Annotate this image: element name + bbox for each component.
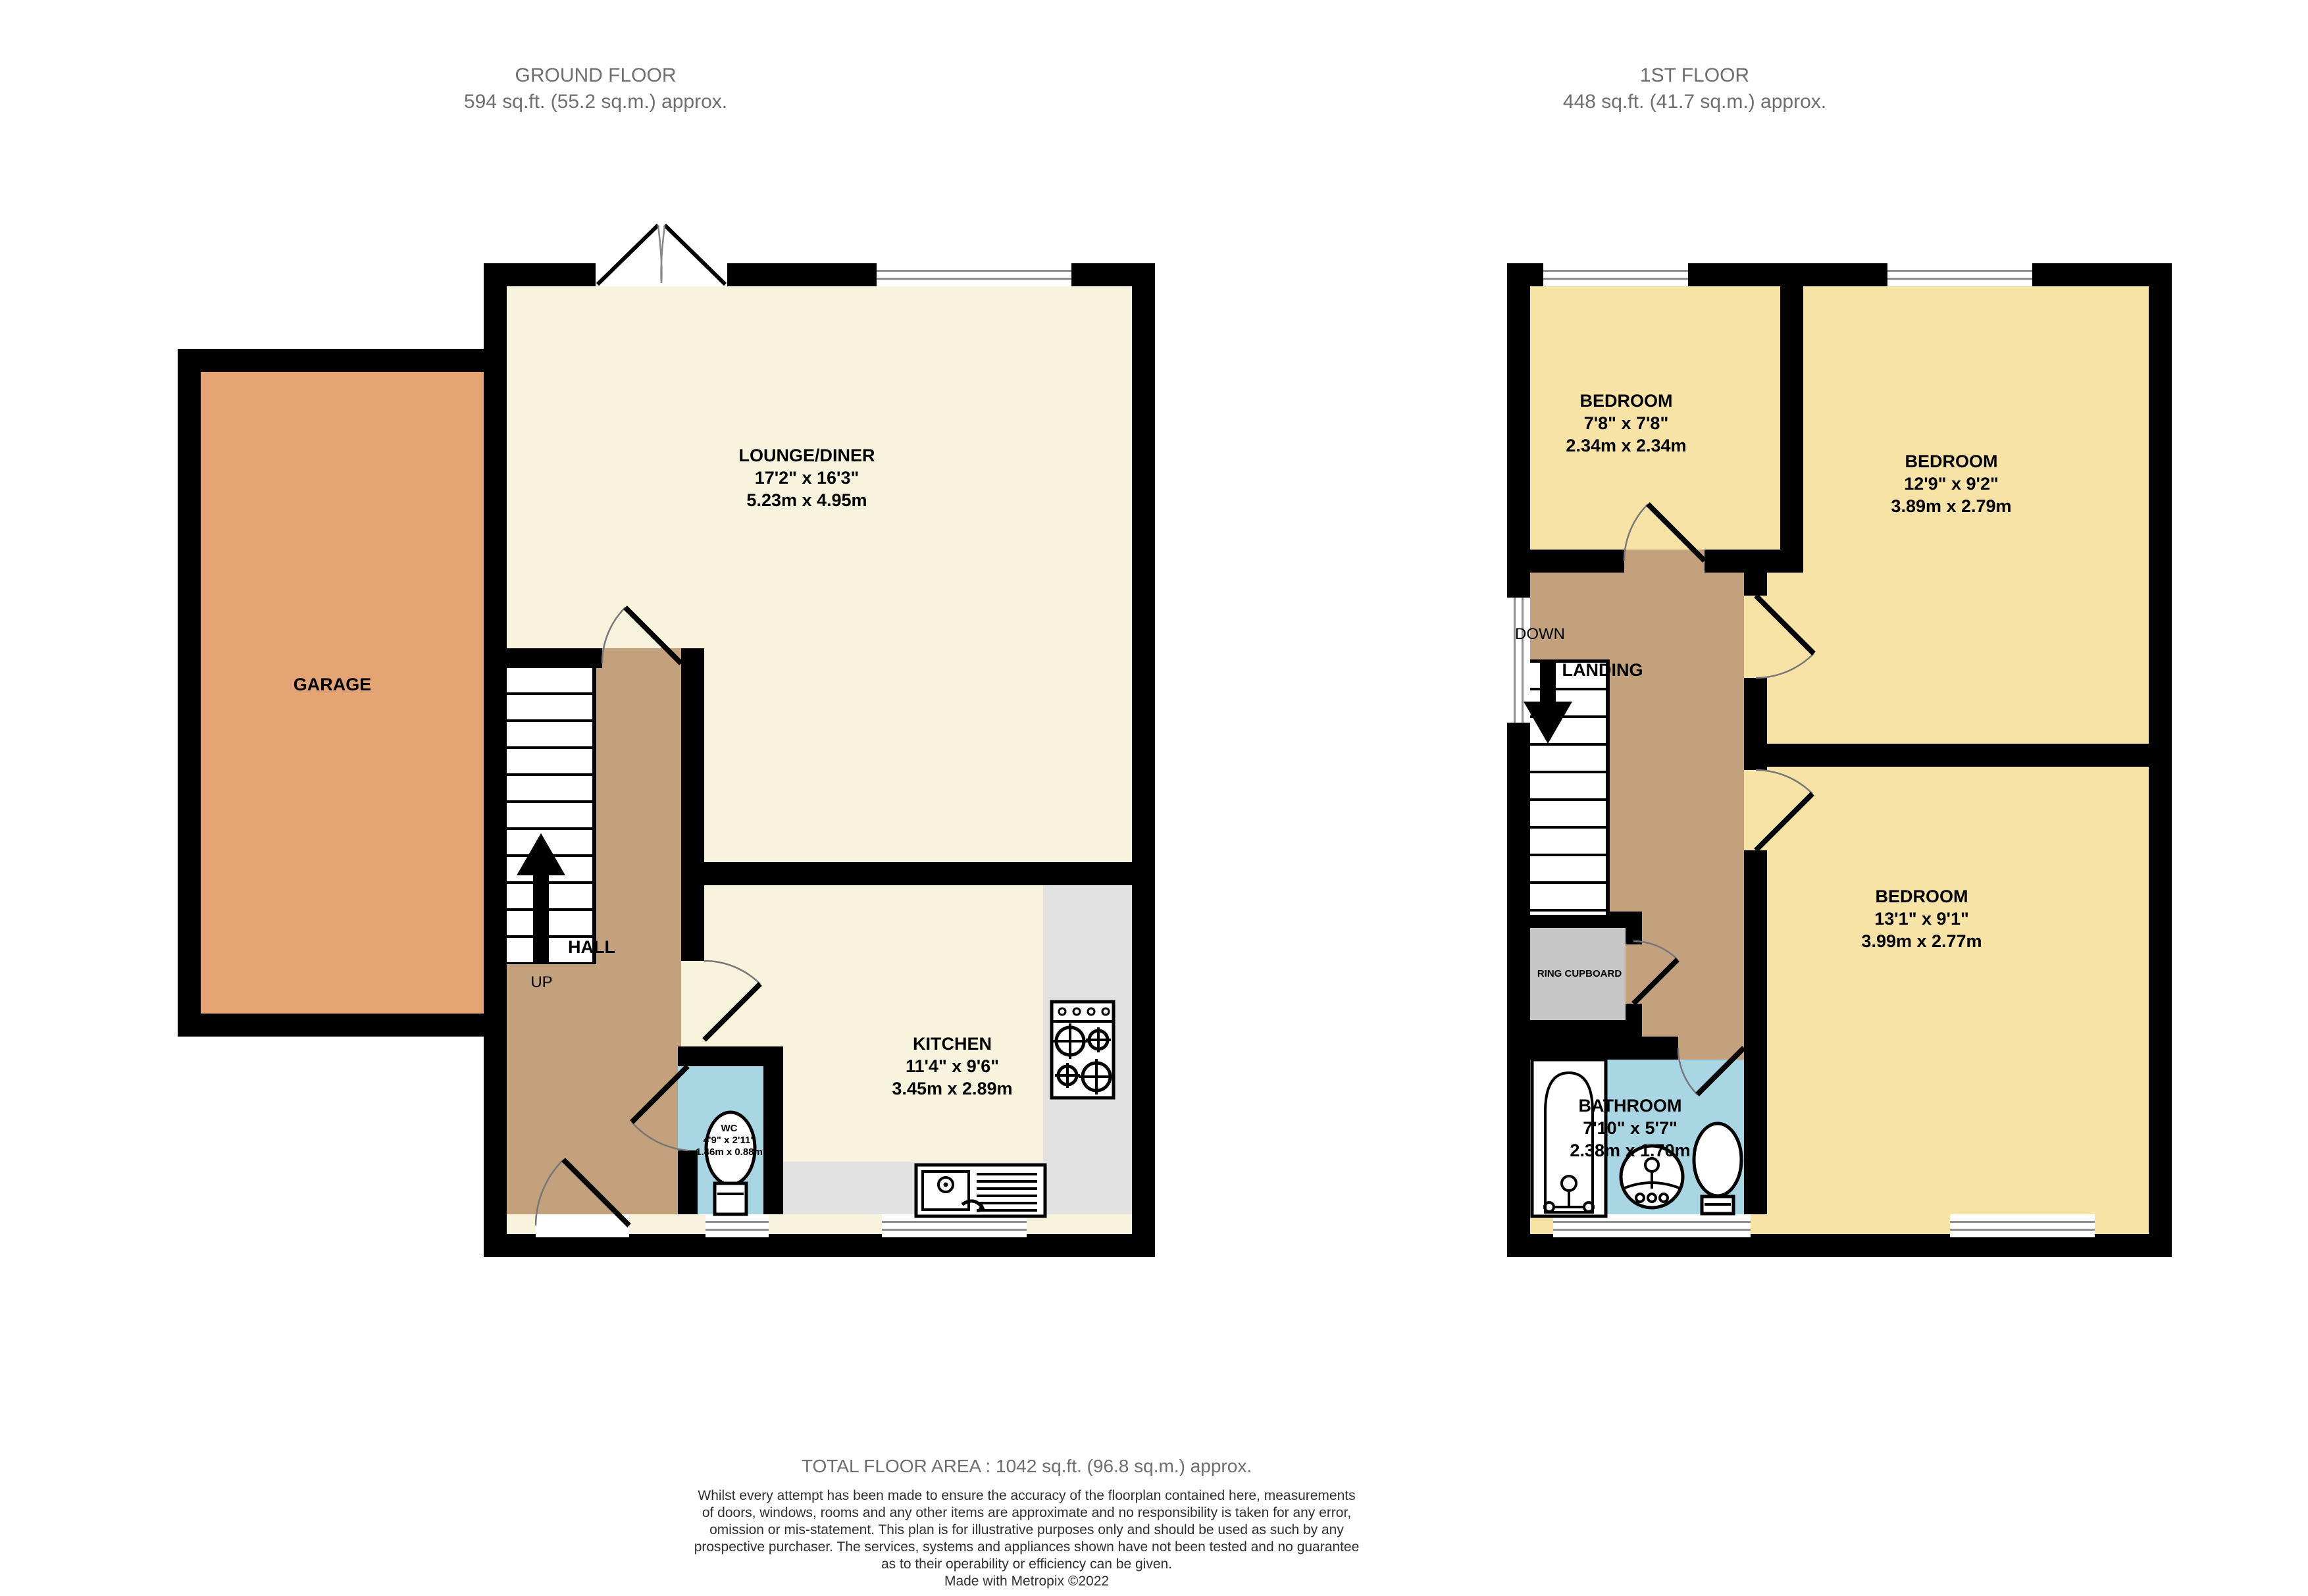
lounge-dims-imperial: 17'2" x 16'3" — [738, 467, 875, 489]
ground-floor-title-block: GROUND FLOOR 594 sq.ft. (55.2 sq.m.) app… — [332, 63, 859, 115]
kitchen-label: KITCHEN 11'4" x 9'6" 3.45m x 2.89m — [892, 1033, 1012, 1100]
wc-dims-imperial: 4'9" x 2'11" — [696, 1135, 763, 1146]
stairs-down-label: DOWN — [1515, 625, 1565, 644]
front-door-icon — [536, 1160, 629, 1225]
credit-line: Made with Metropix ©2022 — [500, 1573, 1553, 1590]
kitchen-door-icon — [704, 961, 760, 1040]
lounge-label: LOUNGE/DINER 17'2" x 16'3" 5.23m x 4.95m — [738, 444, 875, 511]
airing-cupboard-label: RING CUPBOARD — [1537, 968, 1622, 980]
bedroom-front-door-icon — [1756, 770, 1812, 850]
bedroom-front-dims-metric: 3.99m x 2.77m — [1861, 930, 1982, 952]
total-floor-area: TOTAL FLOOR AREA : 1042 sq.ft. (96.8 sq.… — [500, 1456, 1553, 1477]
bedroom-front-label: BEDROOM 13'1" x 9'1" 3.99m x 2.77m — [1861, 885, 1982, 952]
stairs-up-label: UP — [530, 973, 552, 992]
airing-cupboard-door-icon — [1633, 941, 1678, 1004]
stove-icon — [1052, 1002, 1114, 1098]
bathroom-name: BATHROOM — [1570, 1094, 1690, 1117]
wc-dims-metric: 1.46m x 0.88m — [696, 1146, 763, 1158]
footer: TOTAL FLOOR AREA : 1042 sq.ft. (96.8 sq.… — [500, 1456, 1553, 1590]
garage-label: GARAGE — [294, 673, 372, 696]
landing-label: LANDING — [1562, 659, 1643, 681]
kitchen-dims-imperial: 11'4" x 9'6" — [892, 1055, 1012, 1077]
lounge-hall-door-icon — [602, 607, 681, 663]
bedroom-small-name: BEDROOM — [1566, 390, 1686, 412]
bedroom-rear-name: BEDROOM — [1891, 450, 2011, 473]
wc-label: WC 4'9" x 2'11" 1.46m x 0.88m — [696, 1123, 763, 1158]
bathroom-toilet-icon — [1694, 1123, 1741, 1214]
hall-name: HALL — [568, 936, 615, 958]
bedroom-front-dims-imperial: 13'1" x 9'1" — [1861, 908, 1982, 930]
kitchen-sink-icon — [916, 1165, 1045, 1216]
bedroom-front-name: BEDROOM — [1861, 885, 1982, 908]
stairs-up-arrow-icon — [517, 833, 565, 962]
bathroom-dims-imperial: 7'10" x 5'7" — [1570, 1117, 1690, 1139]
ground-floor-subtitle: 594 sq.ft. (55.2 sq.m.) approx. — [332, 89, 859, 115]
first-floor-title-block: 1ST FLOOR 448 sq.ft. (41.7 sq.m.) approx… — [1431, 63, 1958, 115]
kitchen-dims-metric: 3.45m x 2.89m — [892, 1077, 1012, 1100]
ground-floor-title: GROUND FLOOR — [332, 63, 859, 89]
bathroom-dims-metric: 2.38m x 1.70m — [1570, 1139, 1690, 1162]
wc-door-icon — [632, 1066, 688, 1150]
first-floor-title: 1ST FLOOR — [1431, 63, 1958, 89]
landing-name: LANDING — [1562, 659, 1643, 681]
french-doors-icon — [598, 225, 725, 284]
bedroom-small-door-icon — [1624, 504, 1705, 561]
bathroom-label: BATHROOM 7'10" x 5'7" 2.38m x 1.70m — [1570, 1094, 1690, 1162]
disclaimer-line: omission or mis-statement. This plan is … — [500, 1522, 1553, 1539]
kitchen-name: KITCHEN — [892, 1033, 1012, 1055]
bedroom-rear-door-icon — [1756, 596, 1814, 678]
garage-name: GARAGE — [294, 673, 372, 696]
disclaimer-line: of doors, windows, rooms and any other i… — [500, 1505, 1553, 1522]
bedroom-small-dims-metric: 2.34m x 2.34m — [1566, 434, 1686, 457]
bedroom-rear-label: BEDROOM 12'9" x 9'2" 3.89m x 2.79m — [1891, 450, 2011, 517]
disclaimer-line: Whilst every attempt has been made to en… — [500, 1487, 1553, 1505]
bedroom-small-label: BEDROOM 7'8" x 7'8" 2.34m x 2.34m — [1566, 390, 1686, 457]
first-floor-subtitle: 448 sq.ft. (41.7 sq.m.) approx. — [1431, 89, 1958, 115]
lounge-name: LOUNGE/DINER — [738, 444, 875, 467]
hall-label: HALL — [568, 936, 615, 958]
bedroom-rear-dims-metric: 3.89m x 2.79m — [1891, 495, 2011, 517]
bedroom-small-dims-imperial: 7'8" x 7'8" — [1566, 412, 1686, 434]
floorplan-page: GROUND FLOOR 594 sq.ft. (55.2 sq.m.) app… — [0, 0, 2308, 1596]
bedroom-rear-dims-imperial: 12'9" x 9'2" — [1891, 473, 2011, 495]
lounge-dims-metric: 5.23m x 4.95m — [738, 489, 875, 511]
disclaimer-line: as to their operability or efficiency ca… — [500, 1556, 1553, 1573]
fixtures-layer — [0, 0, 2308, 1596]
bathroom-door-icon — [1678, 1048, 1744, 1094]
disclaimer-line: prospective purchaser. The services, sys… — [500, 1539, 1553, 1556]
wc-name: WC — [696, 1123, 763, 1135]
